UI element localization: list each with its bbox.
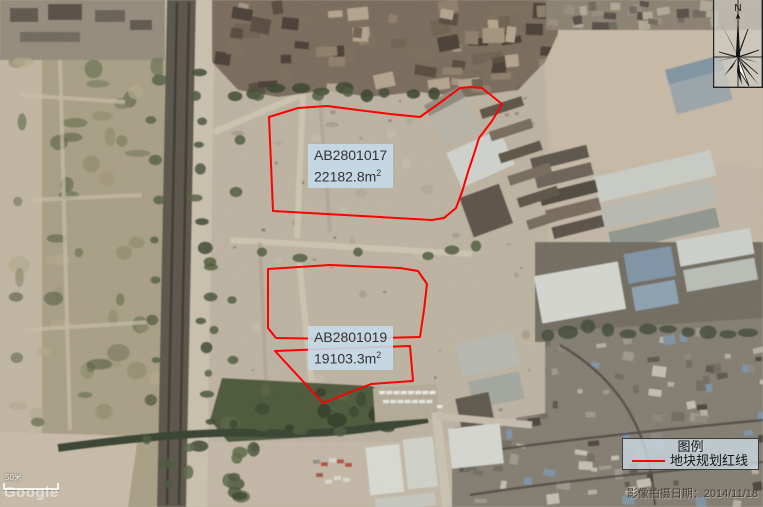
compass-rose: N bbox=[713, 0, 763, 88]
parcel-area: 22182.8m2 bbox=[314, 164, 387, 186]
legend: 图例 地块规划红线 bbox=[622, 438, 759, 470]
parcel-area: 19103.3m2 bbox=[314, 346, 387, 368]
scale-bar-label: 50米 bbox=[5, 474, 59, 482]
legend-title: 图例 bbox=[623, 440, 758, 454]
legend-item: 地块规划红线 bbox=[623, 454, 758, 468]
compass-rose-graphic: N bbox=[713, 0, 763, 88]
image-date-note: 影像拍摄日期：2014/11/18 bbox=[627, 485, 758, 501]
parcel-boundaries-layer bbox=[0, 0, 763, 507]
map-canvas[interactable]: AB2801017 22182.8m2 AB2801019 19103.3m2 … bbox=[0, 0, 763, 507]
parcel-id: AB2801019 bbox=[314, 328, 387, 346]
north-label: N bbox=[734, 3, 741, 14]
parcel-id: AB2801017 bbox=[314, 146, 387, 164]
legend-item-label: 地块规划红线 bbox=[670, 454, 748, 468]
parcel-label-2: AB2801019 19103.3m2 bbox=[308, 326, 393, 370]
parcel-label-1: AB2801017 22182.8m2 bbox=[308, 144, 393, 188]
red-line-symbol bbox=[632, 460, 665, 462]
google-watermark: Google bbox=[4, 484, 59, 501]
